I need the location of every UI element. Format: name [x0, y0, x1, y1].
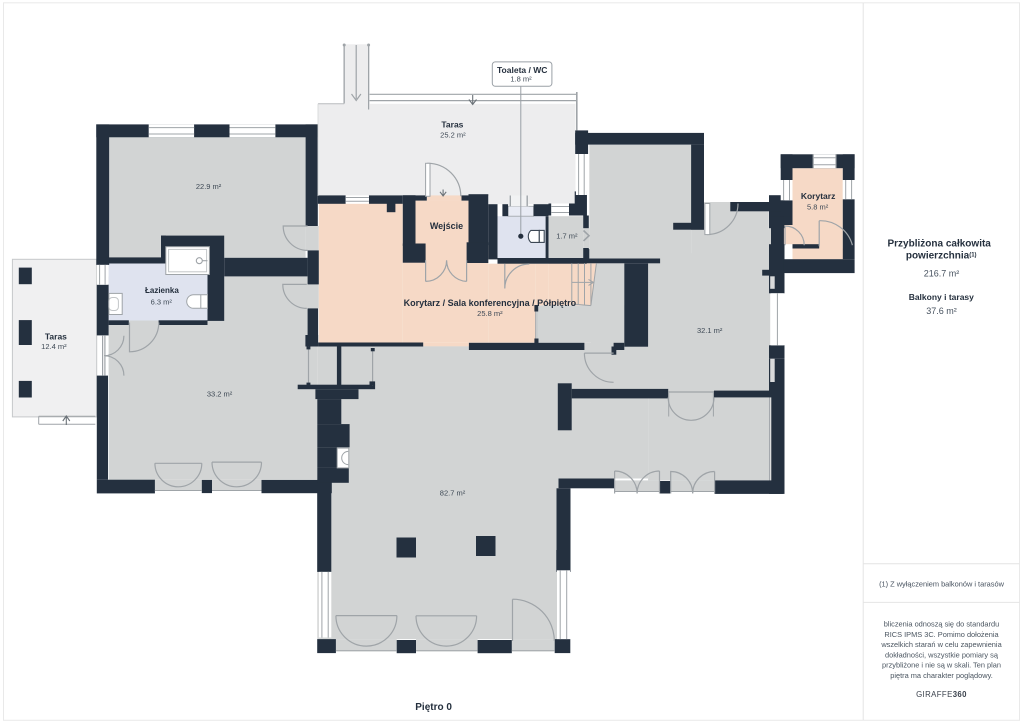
svg-text:Korytarz / Sala konferencyjna: Korytarz / Sala konferencyjna / Półpiętr…: [404, 298, 577, 308]
svg-text:powierzchnia(1): powierzchnia(1): [906, 251, 977, 262]
svg-text:Taras: Taras: [45, 331, 67, 341]
svg-text:GIRAFFE360: GIRAFFE360: [916, 690, 967, 699]
svg-text:25.8 m²: 25.8 m²: [477, 309, 503, 318]
svg-text:Balkony i tarasy: Balkony i tarasy: [909, 292, 974, 302]
svg-text:82.7 m²: 82.7 m²: [440, 488, 466, 497]
svg-text:5.8 m²: 5.8 m²: [807, 203, 829, 212]
svg-text:25.2 m²: 25.2 m²: [440, 131, 466, 140]
svg-text:Łazienka: Łazienka: [145, 286, 179, 295]
svg-text:1.7 m²: 1.7 m²: [556, 232, 578, 241]
svg-text:12.4 m²: 12.4 m²: [41, 342, 67, 351]
svg-text:dokładności, wszystkie pomiary: dokładności, wszystkie pomiary są: [885, 650, 999, 659]
svg-text:Przybliżona całkowita: Przybliżona całkowita: [888, 238, 992, 249]
svg-text:Toaleta / WC: Toaleta / WC: [497, 65, 547, 75]
svg-text:Taras: Taras: [441, 119, 463, 129]
svg-text:22.9 m²: 22.9 m²: [196, 182, 222, 191]
svg-text:piętra ma charakter poglądowy.: piętra ma charakter poglądowy.: [890, 671, 993, 680]
svg-text:216.7 m²: 216.7 m²: [924, 269, 960, 279]
svg-text:32.1 m²: 32.1 m²: [697, 326, 723, 335]
svg-text:RICS IPMS 3C. Pomimo dołożenia: RICS IPMS 3C. Pomimo dołożenia: [884, 630, 999, 639]
svg-text:przybliżone i nie są w skali.: przybliżone i nie są w skali. Ten plan: [882, 661, 1001, 670]
svg-text:1.8 m²: 1.8 m²: [510, 74, 532, 83]
svg-text:33.2 m²: 33.2 m²: [207, 389, 233, 398]
svg-text:Korytarz: Korytarz: [801, 191, 835, 201]
svg-text:bliczenia odnoszą się do stand: bliczenia odnoszą się do standardu: [884, 620, 999, 629]
svg-text:Wejście: Wejście: [430, 221, 463, 231]
svg-text:Piętro 0: Piętro 0: [415, 702, 452, 713]
svg-text:37.6 m²: 37.6 m²: [926, 306, 957, 316]
svg-text:(1) Z wyłączeniem balkonów i t: (1) Z wyłączeniem balkonów i tarasów: [879, 580, 1005, 589]
svg-text:6.3 m²: 6.3 m²: [151, 297, 173, 306]
svg-text:wszelkich starań w celu zapewn: wszelkich starań w celu zapewnienia: [880, 640, 1002, 649]
